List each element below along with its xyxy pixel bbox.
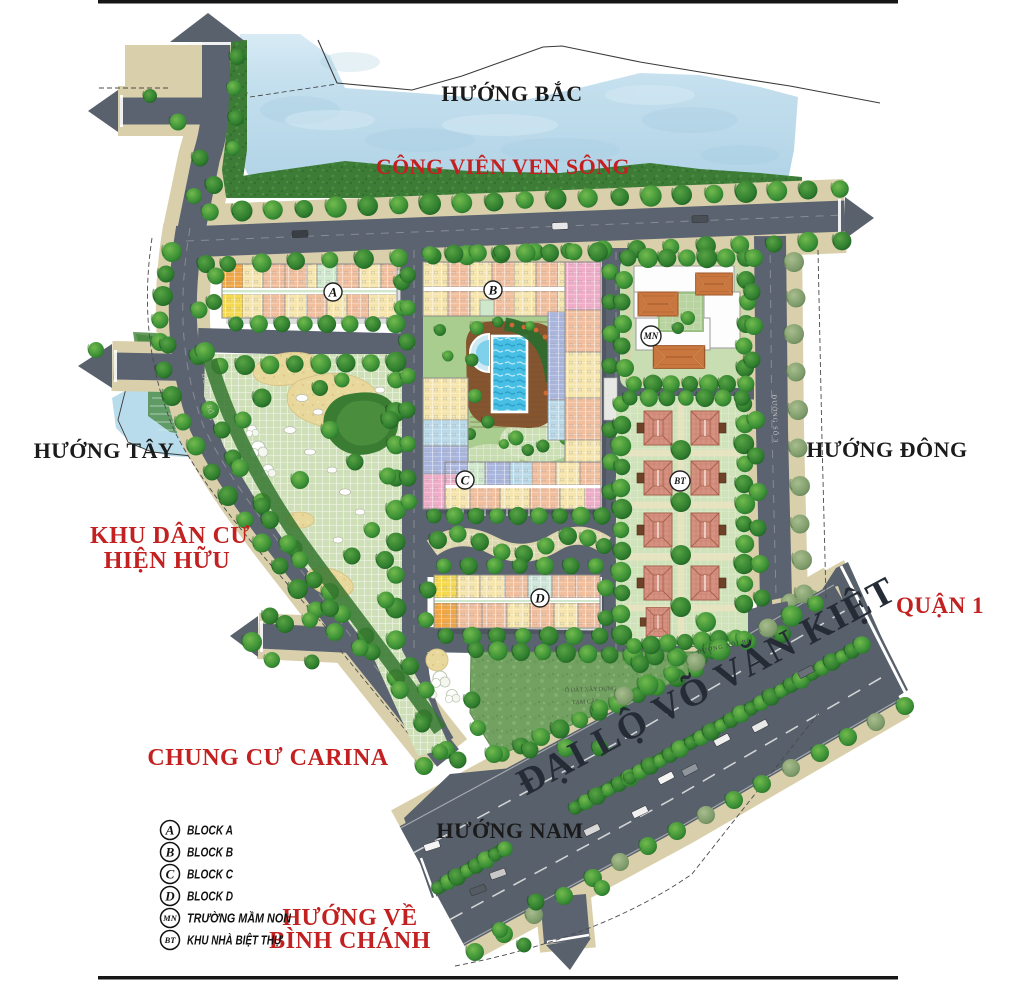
svg-text:BLOCK C: BLOCK C [187,867,233,882]
svg-text:BLOCK D: BLOCK D [187,889,233,904]
svg-text:HƯỚNG ĐÔNG: HƯỚNG ĐÔNG [806,437,967,462]
svg-text:BLOCK A: BLOCK A [187,823,233,838]
svg-text:BÌNH CHÁNH: BÌNH CHÁNH [269,928,431,954]
svg-text:CÔNG VIÊN VEN SÔNG: CÔNG VIÊN VEN SÔNG [376,154,631,179]
svg-text:HƯỚNG TÂY: HƯỚNG TÂY [34,438,175,463]
svg-text:HƯỚNG BẮC: HƯỚNG BẮC [441,81,582,106]
svg-text:TRƯỜNG MẦM NON: TRƯỜNG MẦM NON [187,911,292,926]
svg-text:A: A [328,285,338,300]
svg-text:CHUNG CƯ CARINA: CHUNG CƯ CARINA [147,745,388,771]
svg-text:BLOCK B: BLOCK B [187,845,233,860]
svg-text:HƯỚNG NAM: HƯỚNG NAM [436,818,583,843]
svg-text:HIỆN HỮU: HIỆN HỮU [104,547,230,574]
svg-text:A: A [165,823,175,838]
svg-text:BT: BT [164,935,177,945]
svg-text:D: D [534,591,545,606]
svg-text:BT: BT [673,476,686,486]
svg-text:QUẬN 1: QUẬN 1 [896,593,984,618]
svg-text:KHU DÂN CƯ: KHU DÂN CƯ [90,522,250,549]
svg-text:HƯỚNG VỀ: HƯỚNG VỀ [282,904,417,931]
svg-text:MN: MN [643,331,659,341]
svg-text:C: C [166,867,175,882]
svg-text:C: C [461,473,470,488]
svg-text:B: B [488,283,498,298]
svg-text:MN: MN [162,913,178,923]
svg-text:KHU NHÀ BIỆT THỰ: KHU NHÀ BIỆT THỰ [187,933,284,948]
svg-text:B: B [165,845,175,860]
svg-text:D: D [164,889,175,904]
